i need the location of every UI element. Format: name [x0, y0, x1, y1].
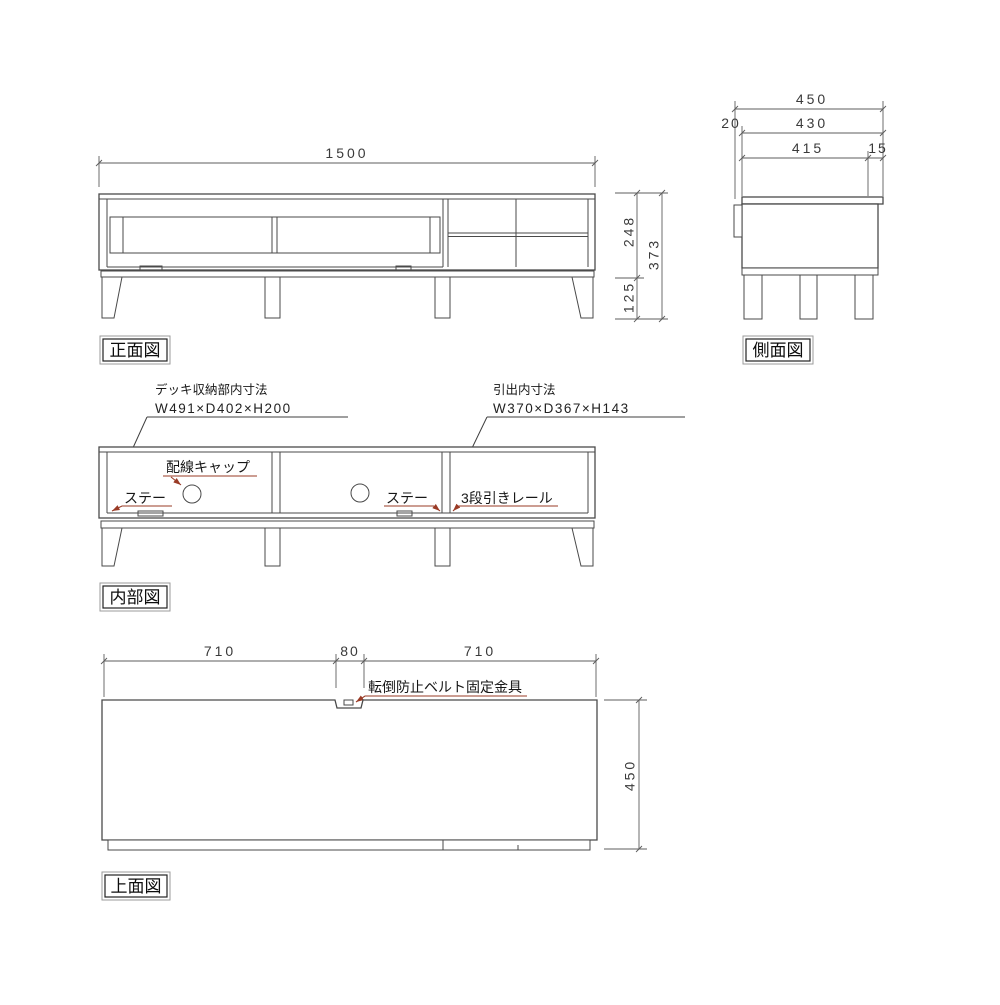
internal-body-outline [99, 447, 595, 518]
side-leg-2 [800, 275, 817, 319]
side-view: 450 20 430 415 15 側面図 [721, 91, 888, 364]
top-board-with-notch [102, 700, 597, 840]
internal-view-label-text: 内部図 [110, 588, 161, 607]
front-width-value: 1500 [325, 145, 368, 161]
deck-size-value: W491×D402×H200 [155, 401, 292, 416]
front-leg-height-value: 125 [621, 281, 637, 313]
internal-leg-2 [265, 528, 280, 566]
drawer-size-title: 引出内寸法 [493, 383, 556, 397]
side-leg-1 [744, 275, 762, 319]
top-view-label: 上面図 [102, 872, 170, 900]
side-cabinet-body [734, 197, 883, 275]
internal-view-label: 内部図 [100, 583, 170, 611]
wiring-hole-right [351, 484, 369, 502]
top-depth-value: 450 [622, 759, 638, 791]
belt-bracket-annotation: 転倒防止ベルト固定金具 [356, 679, 527, 702]
top-view: 710 80 710 転倒防止ベルト固定金具 450 上面図 [101, 643, 647, 900]
side-leg-3 [855, 275, 873, 319]
drawing-page: 1500 248 125 373 [0, 0, 1000, 1000]
top-right-width-value: 710 [464, 643, 496, 659]
front-body-height-value: 248 [621, 215, 637, 247]
front-cabinet-body [99, 194, 595, 277]
side-total-depth-value: 450 [796, 91, 828, 107]
front-body-outline [99, 194, 595, 270]
cable-cap-label: 配線キャップ [166, 459, 250, 475]
side-back-spacer [734, 205, 742, 237]
front-view: 1500 248 125 373 [96, 145, 668, 364]
side-body-depth-value: 430 [796, 115, 828, 131]
internal-view: デッキ収納部内寸法 W491×D402×H200 引出内寸法 W370×D367… [99, 382, 685, 611]
front-leg-3 [435, 277, 450, 318]
side-depth-dimensions: 450 20 430 415 15 [721, 91, 888, 199]
front-legs [102, 277, 593, 318]
internal-base-rail [101, 521, 594, 528]
top-left-width-value: 710 [204, 643, 236, 659]
side-inner-depth-value: 415 [792, 140, 824, 156]
internal-legs [102, 528, 593, 566]
top-view-label-text: 上面図 [111, 877, 162, 896]
top-width-dimensions: 710 80 710 [101, 643, 599, 697]
belt-bracket-part [344, 700, 353, 705]
technical-drawing-canvas: 1500 248 125 373 [0, 0, 1000, 1000]
front-view-label-text: 正面図 [110, 341, 161, 360]
side-base-rail [742, 268, 878, 275]
front-base-rail [101, 271, 594, 277]
drawer-size-value: W370×D367×H143 [493, 401, 630, 416]
side-top-board [742, 197, 883, 204]
deck-size-title: デッキ収納部内寸法 [155, 382, 268, 397]
internal-leg-1 [102, 528, 122, 566]
side-back-offset-value: 20 [721, 115, 741, 131]
internal-leg-3 [435, 528, 450, 566]
top-board-outline [102, 700, 597, 850]
front-leg-1 [102, 277, 122, 318]
stay-right-label: ステー [386, 490, 428, 506]
top-depth-dimension: 450 [604, 697, 647, 852]
side-body-outline [742, 204, 878, 268]
side-view-label: 側面図 [743, 336, 813, 364]
front-total-height-value: 373 [646, 238, 662, 270]
wiring-hole-left [183, 485, 201, 503]
side-view-label-text: 側面図 [753, 341, 804, 360]
front-leg-4 [572, 277, 593, 318]
internal-leg-4 [572, 528, 593, 566]
front-width-dimension: 1500 [96, 145, 598, 187]
stay-left-label: ステー [124, 490, 166, 506]
top-center-width-value: 80 [340, 643, 360, 659]
front-leg-2 [265, 277, 280, 318]
slide-rail-label: 3段引きレール [461, 490, 553, 506]
belt-bracket-label: 転倒防止ベルト固定金具 [368, 679, 522, 695]
side-legs [744, 275, 873, 319]
front-view-label: 正面図 [100, 336, 170, 364]
front-height-dimensions: 248 125 373 [615, 190, 668, 322]
side-front-edge-value: 15 [868, 140, 888, 156]
